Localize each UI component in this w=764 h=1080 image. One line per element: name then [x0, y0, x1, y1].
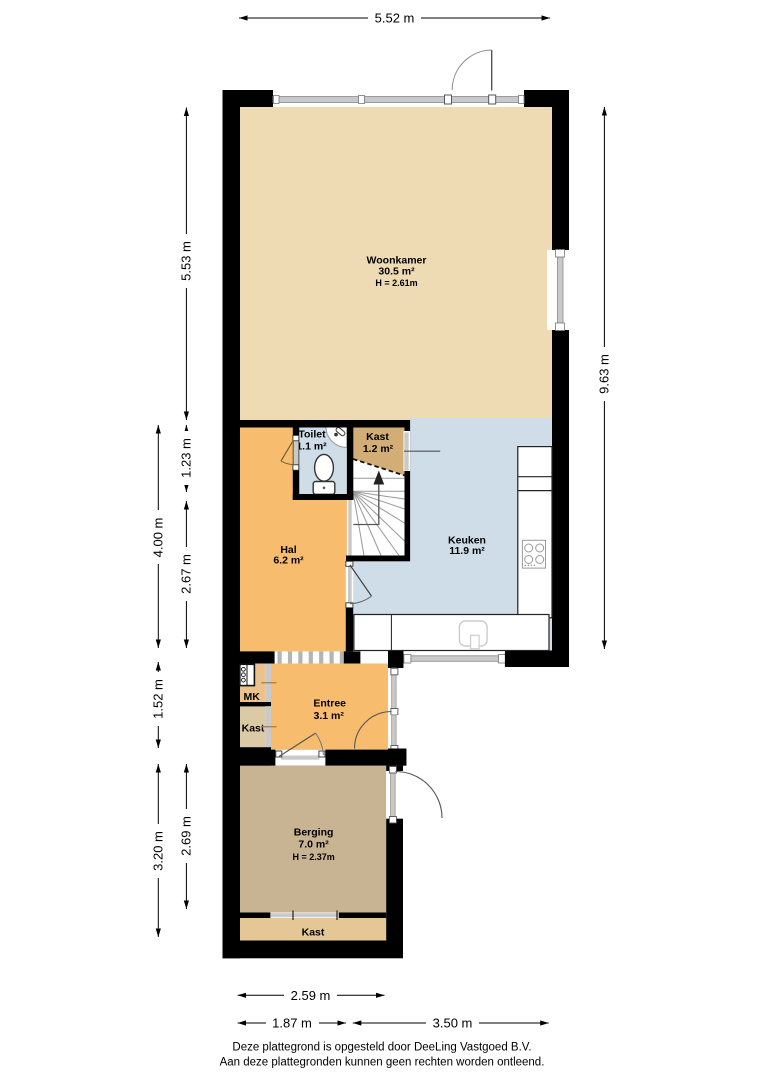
svg-text:7.0 m²: 7.0 m² — [298, 839, 329, 851]
svg-text:6.2 m²: 6.2 m² — [273, 555, 304, 567]
svg-text:Berging: Berging — [294, 827, 334, 839]
svg-text:3.50 m: 3.50 m — [433, 1016, 473, 1031]
svg-text:9.63 m: 9.63 m — [597, 354, 612, 394]
svg-text:5.52 m: 5.52 m — [375, 11, 415, 26]
svg-text:1.87 m: 1.87 m — [272, 1016, 312, 1031]
svg-text:Deze plattegrond is opgesteld: Deze plattegrond is opgesteld door DeeLi… — [232, 1042, 531, 1054]
svg-text:30.5 m²: 30.5 m² — [378, 266, 415, 278]
svg-text:5.53 m: 5.53 m — [179, 241, 194, 281]
svg-text:1.52 m: 1.52 m — [150, 679, 165, 719]
svg-text:11.9 m²: 11.9 m² — [449, 545, 485, 557]
svg-text:1.1 m²: 1.1 m² — [296, 440, 327, 452]
svg-text:Toilet: Toilet — [298, 429, 326, 441]
svg-text:MK: MK — [244, 691, 261, 703]
svg-text:Kast: Kast — [242, 723, 265, 735]
svg-text:Kast: Kast — [366, 431, 389, 443]
svg-text:1.2 m²: 1.2 m² — [363, 443, 394, 455]
svg-text:2.67 m: 2.67 m — [179, 554, 194, 594]
svg-text:3.20 m: 3.20 m — [150, 831, 165, 871]
svg-text:2.59 m: 2.59 m — [291, 988, 331, 1003]
svg-text:4.00 m: 4.00 m — [150, 518, 165, 558]
svg-text:Entree: Entree — [313, 697, 346, 709]
svg-text:3.1 m²: 3.1 m² — [314, 710, 345, 722]
svg-text:H = 2.37m: H = 2.37m — [292, 852, 334, 862]
svg-text:Aan deze plattegronden kunnen: Aan deze plattegronden kunnen geen recht… — [220, 1057, 545, 1069]
svg-text:H = 2.61m: H = 2.61m — [375, 278, 417, 288]
svg-text:1.23 m: 1.23 m — [179, 438, 194, 478]
svg-text:2.69 m: 2.69 m — [179, 816, 194, 856]
svg-text:Kast: Kast — [302, 926, 325, 938]
